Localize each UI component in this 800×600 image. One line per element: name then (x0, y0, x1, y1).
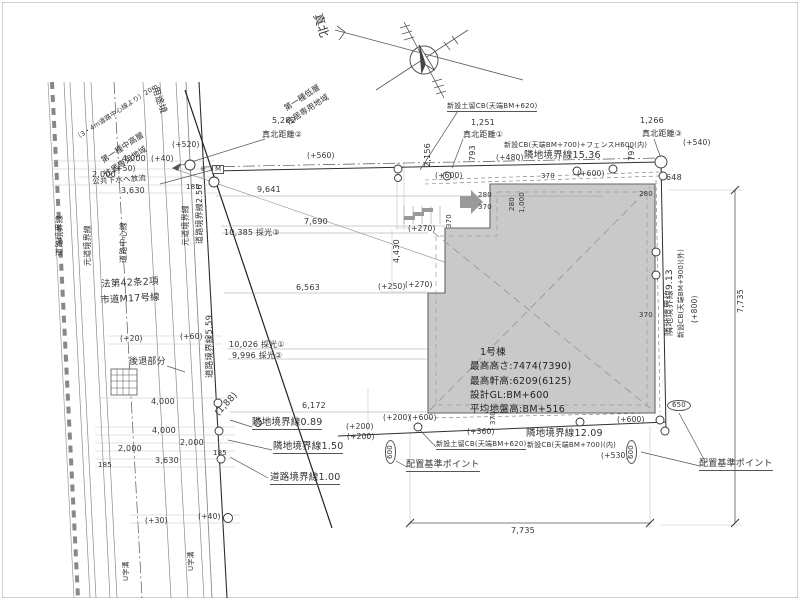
stair-step (404, 216, 415, 220)
label-u-gutter-2: U字溝 (188, 551, 195, 571)
label-road-center: 道路中心線 (120, 222, 128, 263)
site-plan-canvas: 真北5,282真北距離②(+520)4,000(+40)(+50)2,000公共… (0, 0, 800, 600)
dim-797: 797 (628, 145, 636, 161)
setback-hatch (111, 369, 137, 395)
building-max-height: 最高高さ:7474(7390) (470, 360, 571, 374)
dim-793: 793 (469, 145, 477, 161)
dim-280-entrance: 280 (478, 192, 492, 199)
dim-6172: 6,172 (302, 402, 326, 410)
dim-4430: 4,430 (393, 239, 401, 263)
label-rinchi-kyokai-089: 隣地境界線0.89 (252, 418, 322, 430)
level-plus540: (+540) (683, 139, 711, 147)
dim-1266: 1,266 (640, 117, 664, 125)
dim-10385-saiko: 10,385 採光③ (224, 229, 280, 237)
label-cb700-bottom: 新設CB(天端BM+700)(内) (527, 442, 616, 449)
label-cb620-bottom: 新設土留CB(天端BM+620) (436, 441, 526, 450)
dim-280-topright: 280 (639, 191, 653, 198)
label-moto-michi-left: 元道境界線 (84, 225, 92, 266)
dim-1000-v: 1,000 (519, 192, 526, 213)
dim-6563: 6,563 (296, 284, 320, 292)
dim-1251: 1,251 (471, 119, 495, 127)
level-plus200-b: (+200) (346, 423, 374, 431)
level-plus270-lower: (+270) (405, 281, 433, 289)
dim-648: 648 (666, 174, 682, 182)
dim-370-right: 370 (639, 312, 653, 319)
stair-step (422, 208, 433, 212)
label-haichi-kijun-right: 配置基準ポイント (699, 460, 773, 471)
dim-370-tr: 370 (541, 173, 555, 180)
level-plus200-a: (+200) (383, 414, 411, 422)
level-plus480: (+480) (496, 154, 524, 162)
dim-280-v: 280 (509, 197, 516, 211)
label-shinboku-kyori-2: 真北距離② (262, 131, 302, 139)
label-cb900-right: 新設CB(天端BM+900)(外) (678, 249, 685, 338)
building-info: 1号棟 最高高さ:7474(7390) 最高軒高:6209(6125) 設計GL… (470, 346, 571, 417)
dim-2156: 2,156 (424, 143, 432, 167)
symbol-M: M (212, 165, 224, 174)
level-plus200-c: (+200) (347, 433, 375, 441)
label-moto-michi-right: 元道境界線 (182, 205, 190, 246)
building-name: 1号棟 (470, 346, 571, 360)
stair-step (413, 212, 424, 216)
level-plus30: (+30) (145, 517, 168, 525)
level-plus600-bl: (+600) (409, 414, 437, 422)
dim-370-entrance: 370 (478, 204, 492, 211)
dim-10026-saiko: 10,026 採光① (229, 341, 285, 349)
label-shinboku-kyori-3: 真北距離③ (642, 130, 682, 138)
label-haichi-kijun-left: 配置基準ポイント (406, 461, 480, 472)
label-setback: 後退部分 (129, 358, 166, 367)
building-design-gl: 設計GL:BM+600 (470, 389, 571, 403)
label-road-kyokai-559: 道路境界線5.59 (206, 315, 215, 378)
dim-7690: 7,690 (304, 218, 328, 226)
level-plus360: (+360) (467, 428, 495, 436)
label-rinchi-kyokai-1209: 隣地境界線12.09 (526, 429, 603, 439)
level-plus20: (+20) (120, 335, 143, 343)
dim-185-low-r: 185 (213, 450, 227, 457)
dim-7735-bottom: 7,735 (511, 527, 535, 535)
level-plus60: (+60) (180, 333, 203, 341)
north-symbol (335, 22, 523, 98)
label-rinchi-kyokai-913: 隣地境界線9.13 (666, 269, 675, 336)
dim-7735-right: 7,735 (737, 289, 745, 313)
level-plus40-top: (+40) (151, 155, 174, 163)
dim-4000-low: 4,000 (152, 427, 176, 435)
level-plus40-low: (+40) (198, 513, 221, 521)
label-cb700-fence-top: 新設CB(天端BM+700)+フェンスH600(内) (504, 142, 647, 149)
label-shinboku-kyori-1: 真北距離① (463, 131, 503, 139)
dim-9996-saiko: 9,996 採光② (232, 352, 282, 360)
dim-2000-low-r: 2,000 (180, 439, 204, 447)
label-u-gutter-1: U字溝 (123, 561, 130, 581)
dim-3630-top: 3,630 (121, 187, 145, 195)
label-road-kyokai-100: 道路境界線1.00 (270, 473, 340, 485)
dim-9641: 9,641 (257, 186, 281, 194)
level-plus530: (+530) (601, 452, 629, 460)
level-plus250: (+250) (378, 283, 406, 291)
label-road-kyokai-left: 道路境界線 (56, 215, 64, 256)
dim-370-step: 370 (446, 214, 453, 228)
dim-4000-mid: 4,000 (151, 398, 175, 406)
label-cb620-top: 新設土留CB(天端BM+620) (447, 103, 537, 112)
level-plus520: (+520) (172, 141, 200, 149)
building-avg-ground: 平均地盤高:BM+516 (470, 403, 571, 417)
dim-2000-low-l: 2,000 (118, 445, 142, 453)
level-plus600-topright: (+600) (577, 170, 605, 178)
label-rinchi-kyokai-150: 隣地境界線1.50 (273, 442, 343, 454)
level-plus270-upper: (+270) (408, 225, 436, 233)
level-plus600-br: (+600) (617, 416, 645, 424)
label-road-kyokai-256: 道路境界線2.56 (196, 184, 204, 244)
label-rinchi-kyokai-1536: 隣地境界線15.36 (524, 151, 601, 161)
level-plus560: (+560) (307, 152, 335, 160)
building-max-eaves: 最高軒高:6209(6125) (470, 375, 571, 389)
level-plus800: (+800) (691, 295, 699, 323)
south-site-boundary (338, 422, 666, 436)
symbol-star: ※ (200, 166, 206, 173)
dim-3630-low: 3,630 (155, 457, 179, 465)
dim-185-low-l: 185 (98, 462, 112, 469)
level-plus600-topleft: (+600) (435, 172, 463, 180)
